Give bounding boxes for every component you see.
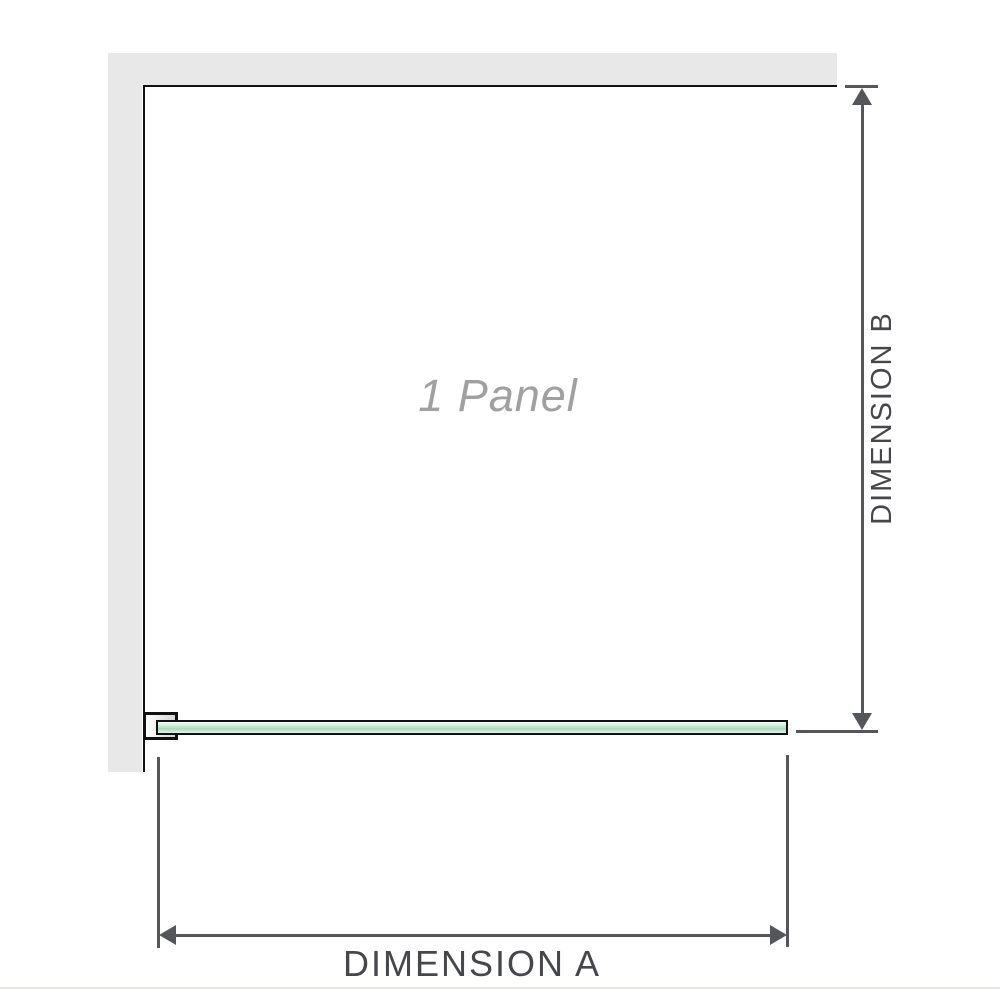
enclosure-top-edge — [143, 85, 837, 87]
wall-left-segment — [108, 53, 142, 772]
wall-top-segment — [108, 53, 837, 85]
dimension-a-line — [174, 934, 772, 937]
dimension-a-extension-right — [786, 755, 789, 947]
dimension-b-bottom-tick — [796, 730, 878, 733]
dimension-a-label: DIMENSION A — [272, 944, 672, 984]
dimension-a-arrowhead-left-icon — [159, 925, 176, 945]
glass-panel-bar — [156, 720, 788, 735]
dimension-a-extension-left — [157, 757, 160, 948]
dimension-b-arrowhead-up-icon — [852, 88, 872, 105]
dimension-b-label: DIMENSION B — [866, 268, 898, 568]
dimension-b-arrowhead-down-icon — [852, 713, 872, 730]
image-bottom-border — [0, 987, 1000, 989]
panel-count-label: 1 Panel — [298, 366, 698, 426]
dimension-b-line — [861, 103, 864, 716]
enclosure-left-edge — [143, 85, 145, 772]
dimension-a-arrowhead-right-icon — [770, 925, 787, 945]
panel-diagram-canvas: 1 Panel DIMENSION B DIMENSION A — [0, 0, 1000, 1000]
